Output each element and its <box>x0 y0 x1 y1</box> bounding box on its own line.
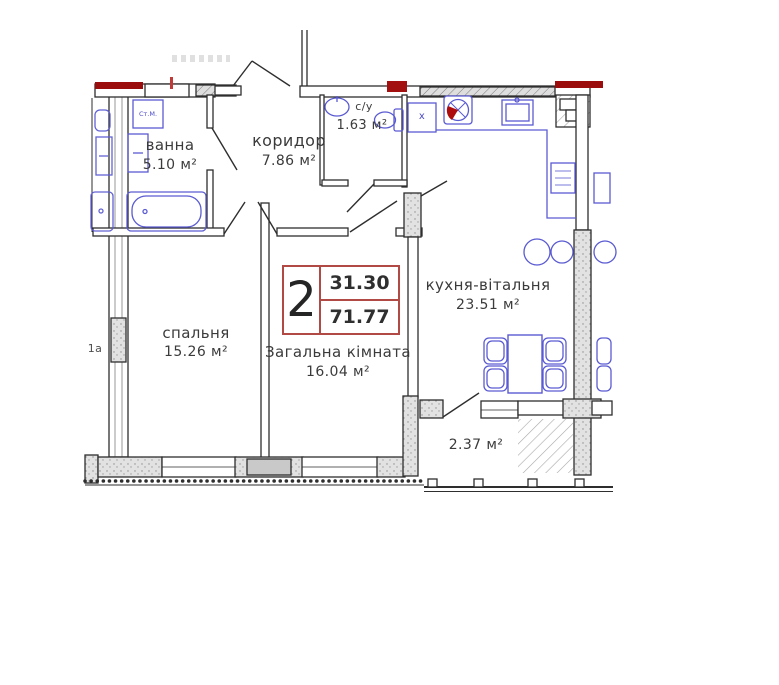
stool-icon <box>524 239 550 265</box>
bathroom-area: 5.10 м² <box>143 157 198 173</box>
balcony-area: 2.37 м² <box>449 437 504 453</box>
washing-machine-label: Ст.М. <box>139 110 157 118</box>
corridor-area: 7.86 м² <box>262 153 317 169</box>
balcony-door <box>443 393 479 417</box>
walls <box>85 30 613 492</box>
kitchen-door <box>421 181 447 196</box>
apartment-card-values: 31.30 71.77 <box>321 267 398 333</box>
chair-icon <box>543 338 566 364</box>
bathtub-icon <box>127 192 206 231</box>
apartment-living-area-value: 31.30 <box>321 267 398 301</box>
wall-bathroom-right <box>207 95 213 232</box>
neighbor-label-fragment: 1а <box>88 342 103 355</box>
neighbor-fixtures-right <box>594 173 616 391</box>
bedroom-name: спальня <box>162 324 229 342</box>
apartment-total-area-value: 71.77 <box>321 301 398 333</box>
chair-icon <box>484 338 507 364</box>
dining-table-icon <box>508 335 542 393</box>
fridge-icon <box>551 163 575 193</box>
kitchen-living-area: 23.51 м² <box>456 297 520 313</box>
living-room-area: 16.04 м² <box>306 364 370 380</box>
wall-corridor-bottom <box>93 228 422 236</box>
corridor-name: коридор <box>252 131 326 150</box>
entrance-door <box>233 61 290 86</box>
party-wall-left <box>92 95 128 457</box>
bathroom-door <box>212 128 237 170</box>
balcony-hatch-area <box>518 419 573 473</box>
duct-label: х <box>419 111 425 122</box>
apartment-card: 2 31.30 71.77 <box>282 265 400 335</box>
faint-caption-fragment <box>172 55 230 62</box>
wc-name: с/у <box>355 100 372 113</box>
wall-living-kitchen <box>404 193 421 397</box>
wc-sink-icon <box>325 96 349 116</box>
bathroom-name: ванна <box>146 136 195 154</box>
wc-door <box>347 184 374 212</box>
kitchen-sink-icon <box>502 98 533 125</box>
wc-area: 1.63 м² <box>337 118 388 133</box>
chair-icon <box>484 366 507 391</box>
wall-bottom-exterior <box>85 455 424 485</box>
apartment-rooms-count: 2 <box>284 267 321 333</box>
living-room-name: Загальна кімната <box>265 343 411 361</box>
wall-bedroom-living <box>261 203 269 458</box>
bedroom-area: 15.26 м² <box>164 344 228 360</box>
kitchen-living-name: кухня-вітальня <box>426 276 551 294</box>
chair-icon <box>543 366 566 391</box>
balcony-rail <box>424 479 613 492</box>
wall-top-main <box>300 30 590 97</box>
stove-icon <box>444 96 472 124</box>
floor-plan-canvas: ванна 5.10 м² коридор 7.86 м² с/у 1.63 м… <box>0 0 779 685</box>
living-room-door <box>350 201 397 232</box>
stool-icon <box>551 241 573 263</box>
